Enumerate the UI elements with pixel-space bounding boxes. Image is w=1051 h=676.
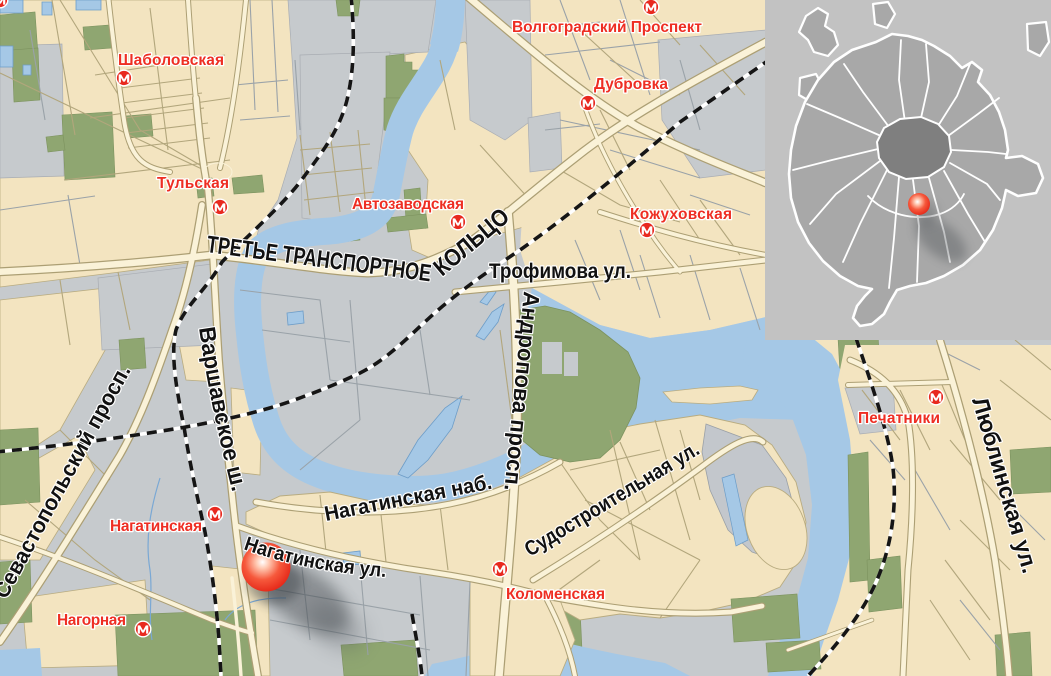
svg-text:Волгоградский Проспект: Волгоградский Проспект <box>512 19 702 36</box>
svg-text:Коломенская: Коломенская <box>506 586 605 603</box>
svg-text:Шаболовская: Шаболовская <box>118 52 224 69</box>
svg-text:Тульская: Тульская <box>157 175 229 192</box>
svg-text:Дубровка: Дубровка <box>594 76 668 93</box>
svg-text:Кожуховская: Кожуховская <box>630 206 732 223</box>
svg-text:Нагатинская: Нагатинская <box>110 518 202 535</box>
svg-text:Нагорная: Нагорная <box>57 612 126 629</box>
svg-text:Трофимова ул.: Трофимова ул. <box>489 260 631 283</box>
svg-text:Печатники: Печатники <box>858 410 940 427</box>
svg-text:Автозаводская: Автозаводская <box>352 196 464 213</box>
